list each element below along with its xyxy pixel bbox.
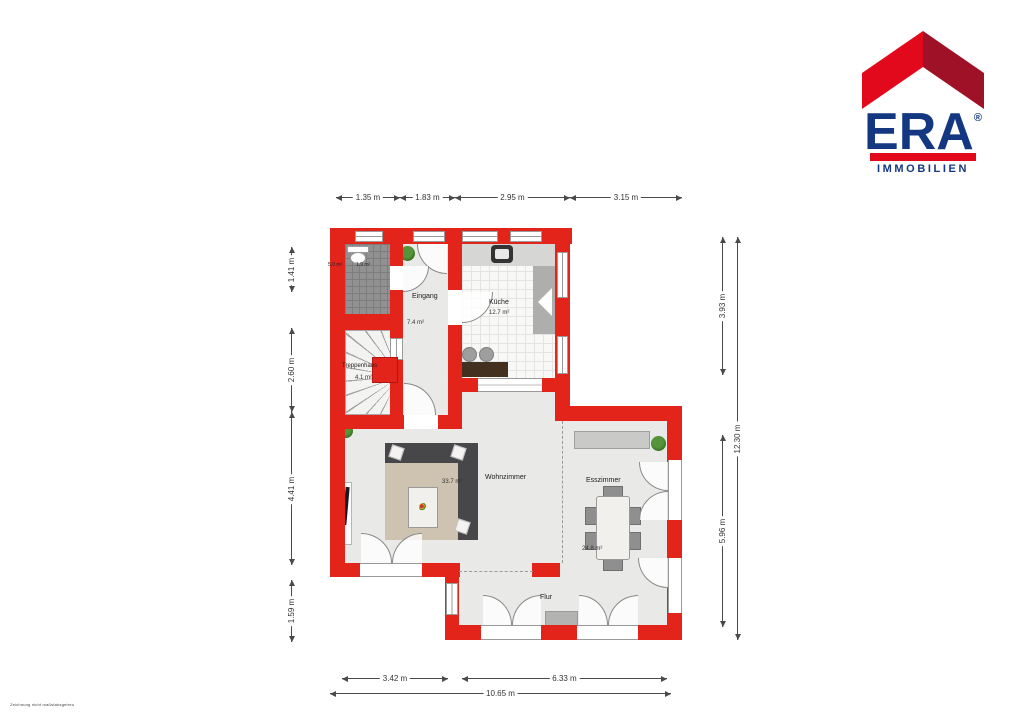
wall-eingang-kueche — [448, 244, 462, 429]
roof-left-half — [862, 31, 923, 109]
dim-label: 2.95 m — [497, 193, 527, 203]
door-opening — [448, 290, 462, 325]
dim-label: 10.65 m — [483, 689, 518, 699]
window — [446, 583, 458, 615]
door-opening — [390, 266, 403, 290]
dim-label: 1.59 m — [287, 596, 297, 626]
dining-chair — [603, 559, 623, 571]
window — [462, 231, 498, 242]
roof-right-half — [923, 31, 984, 109]
room-area-treppenhaus: 4.1 m² — [355, 375, 372, 381]
dim-label: 5.96 m — [718, 516, 728, 546]
window — [355, 231, 383, 242]
wc-area-label: 1.9 m² — [356, 263, 370, 268]
dimension-top-2: 1.83 m — [400, 197, 455, 198]
dimension-top-3: 2.95 m — [455, 197, 570, 198]
wc-area-label: 5.0 m² — [328, 263, 342, 268]
door-opening — [668, 558, 682, 613]
table-flowers — [419, 503, 427, 511]
room-area-esszimmer: 24.8 m² — [582, 546, 602, 552]
room-label-kueche: Küche — [489, 299, 509, 306]
kitchen-pass-opening — [478, 378, 542, 392]
dimension-bottom-1: 3.42 m — [342, 678, 448, 679]
kitchen-sink-basin — [495, 249, 509, 259]
doormat — [545, 611, 578, 626]
dim-label: 6.33 m — [549, 674, 579, 684]
wall-stairs-bottom — [330, 415, 462, 429]
dim-label: 3.42 m — [380, 674, 410, 684]
dimension-right-lower: 5.96 m — [722, 435, 723, 627]
dim-label: 4.41 m — [287, 473, 297, 503]
room-area-wohnzimmer: 33.7 m² — [442, 479, 462, 485]
room-area-eingang: 7.4 m² — [407, 320, 424, 326]
open-boundary-flur — [459, 571, 533, 572]
dimension-top-4: 3.15 m — [570, 197, 682, 198]
open-boundary-esszimmer — [562, 421, 563, 563]
dimension-right-upper: 3.93 m — [722, 237, 723, 375]
kitchen-counter — [460, 362, 508, 377]
dimension-left-2: 2.60 m — [291, 328, 292, 412]
room-area-kueche: 12.7 m² — [489, 310, 509, 316]
dimension-right-total: 12.30 m — [737, 237, 738, 640]
stool — [479, 347, 494, 362]
era-logo-bar — [870, 153, 976, 161]
wall-left — [330, 228, 345, 576]
french-door-opening — [668, 460, 682, 520]
wall-wc-pier — [390, 244, 403, 266]
dimension-left-3: 4.41 m — [291, 412, 292, 565]
era-logo-roof — [860, 27, 988, 109]
french-door-opening — [360, 563, 422, 577]
dining-chair — [629, 532, 641, 550]
room-label-treppenhaus: Treppenhaus — [342, 363, 377, 369]
sideboard — [574, 431, 650, 449]
roof-icon — [860, 27, 988, 109]
room-label-flur: Flur — [540, 594, 552, 601]
dimension-bottom-2: 6.33 m — [462, 678, 667, 679]
era-logo-subtitle: IMMOBILIEN — [862, 164, 984, 175]
era-logo-wordmark: ERA® — [862, 106, 984, 158]
scale-footnote: Zeichnung nicht maßstabsgetreu — [10, 702, 74, 707]
room-label-esszimmer: Esszimmer — [586, 477, 621, 484]
window — [557, 336, 568, 374]
plant — [651, 436, 666, 451]
chimney-block — [372, 357, 398, 383]
dim-label: 1.35 m — [353, 193, 383, 203]
dim-label: 3.15 m — [611, 193, 641, 203]
room-label-eingang: Eingang — [412, 293, 438, 300]
stool — [462, 347, 477, 362]
window — [557, 252, 568, 298]
window — [413, 231, 445, 242]
dimension-left-4: 1.59 m — [291, 580, 292, 642]
wall-wc-pier — [390, 290, 403, 314]
wall-flur-pier — [532, 563, 560, 577]
french-door-opening — [481, 625, 541, 640]
dimension-top-1: 1.35 m — [336, 197, 400, 198]
wall-wc-bottom — [330, 314, 403, 330]
floorplan-page: 5.0 m² 1.9 m² Eingang 7.4 m² Küche 12.7 … — [0, 0, 1024, 724]
window — [510, 231, 542, 242]
dim-label: 12.30 m — [733, 421, 743, 456]
dim-label: 2.60 m — [287, 355, 297, 385]
dimension-bottom-total: 10.65 m — [330, 693, 671, 694]
room-label-wohnzimmer: Wohnzimmer — [485, 474, 526, 481]
french-door-opening — [577, 625, 638, 640]
dim-label: 1.83 m — [412, 193, 442, 203]
dim-label: 3.93 m — [718, 291, 728, 321]
dim-label: 1.41 m — [287, 254, 297, 284]
dimension-left-1: 1.41 m — [291, 247, 292, 292]
wall-esszimmer-top — [555, 406, 682, 421]
registered-trademark-icon: ® — [974, 112, 982, 124]
door-opening — [404, 415, 438, 429]
